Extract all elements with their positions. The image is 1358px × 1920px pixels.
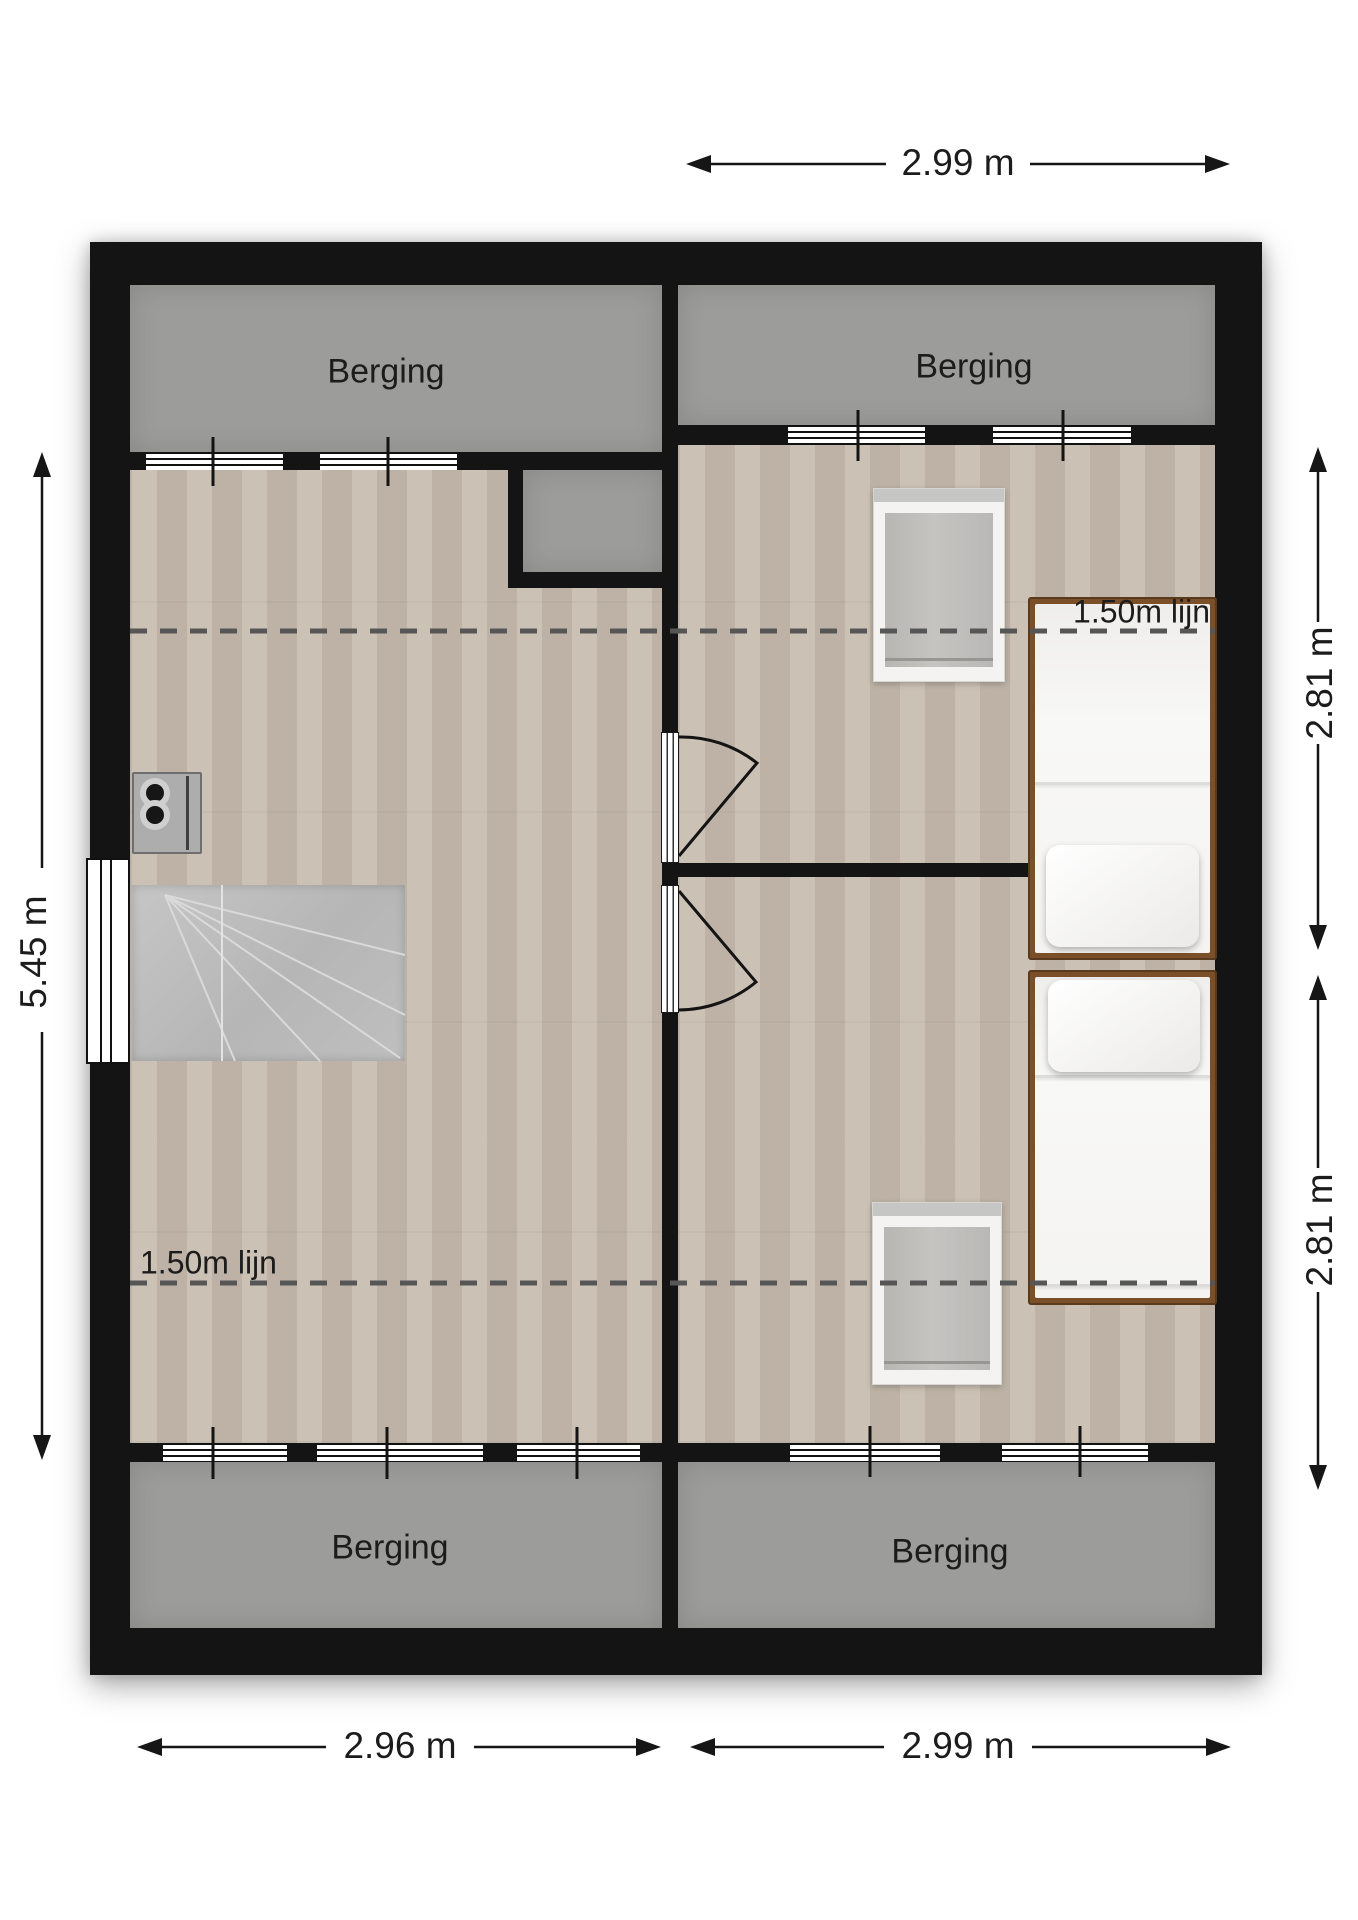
dim-bottom-left-width: 2.96 m [343,1725,456,1767]
attic-dashed-lines [130,631,1215,1283]
room-label-berging-bottom-left: Berging [331,1529,448,1568]
attic-line-label-top: 1.50m lijn [1073,594,1210,631]
window-ticks [213,410,1080,1479]
attic-line-label-bottom: 1.50m lijn [140,1245,277,1282]
door-arc-top-bedroom [678,737,757,856]
dim-right-bottom-height: 2.81 m [1299,1173,1341,1286]
door-arc-bottom-bedroom [678,891,756,1010]
stair-tread-lines [165,885,405,1061]
dim-left-height: 5.45 m [13,895,55,1008]
room-label-berging-top-right: Berging [915,348,1032,387]
dim-bottom-right-width: 2.99 m [901,1725,1014,1767]
dim-top-width: 2.99 m [901,142,1014,184]
dimension-arrows [33,155,1327,1756]
room-label-berging-bottom-right: Berging [891,1533,1008,1572]
annotation-overlay [0,0,1358,1920]
door-swing-arcs [678,737,757,1010]
room-label-berging-top-left: Berging [327,353,444,392]
dim-right-top-height: 2.81 m [1299,626,1341,739]
